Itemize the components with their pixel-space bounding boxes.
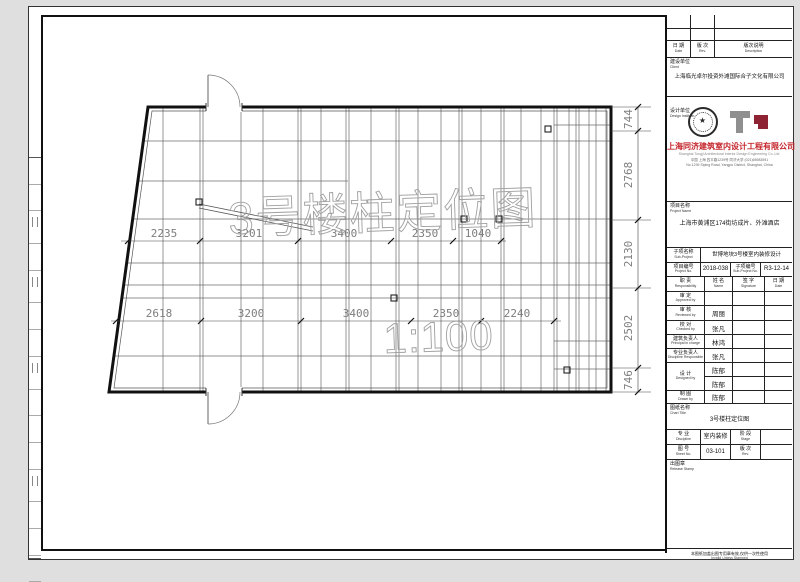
binding-strip-cell: [29, 277, 41, 304]
design-institute-name: 上海同济建筑室内设计工程有限公司: [667, 141, 792, 152]
floor-plan-drawing: 2235 3201 3400 2350 1040 2618 3200 3400 …: [41, 15, 665, 553]
copyright-note: 本图纸加盖出图专用章有效,仅供一次性使用 Invalid Unless Stam…: [667, 549, 792, 563]
design-institute-address: 中国 上海 四平路1239号 同济大学 (021)65983591 No.123…: [667, 158, 792, 167]
project-name-block: 项目名称 Project Name 上海市黄浦区174街坊成片、外滩酒店: [667, 202, 792, 248]
person-row-designed: 设 计 Designed by 陈郁 陈郁: [667, 363, 792, 391]
release-stamp-block: 出图章 Release Stamp: [667, 460, 792, 549]
responsibility-header-row: 职 责 Responsibility 姓 名 Name 签 字 Signatur…: [667, 277, 792, 292]
binding-strip-cell: [29, 244, 41, 271]
discipline-value: 室内装修: [703, 434, 727, 441]
dimension-label: 2768: [622, 162, 635, 189]
dimension-label: 2618: [146, 307, 173, 320]
cad-sheet-viewer: { "document": { "watermark_title": "3号楼柱…: [0, 0, 800, 568]
person-row-reviewed: 审 核 Reviewed by 周丽: [667, 306, 792, 321]
binding-strip-cell: [29, 217, 41, 244]
binding-strip-cell: [29, 158, 41, 185]
revision-header-row: 日 期 Date 版 次 Rev. 版次说明 Description: [667, 41, 792, 58]
title-block: 日 期 Date 版 次 Rev. 版次说明 Description 建设单位 …: [665, 15, 792, 553]
project-number: 2018-038: [703, 266, 728, 273]
binding-strip-cell: [29, 330, 41, 357]
binding-strip-cell: [29, 416, 41, 443]
binding-strip: [29, 157, 41, 559]
watermark-scale: 1:100: [383, 311, 495, 362]
dimension-label: 3400: [343, 307, 370, 320]
tj-logo-icon: [728, 107, 772, 137]
design-institute-block: 设计单位 Design Institute 上海同济建筑室内设计工程有限公司 S…: [667, 107, 792, 202]
binding-strip-cell: [29, 476, 41, 503]
door-bottom: [206, 387, 242, 424]
binding-strip-cell: [29, 502, 41, 529]
watermark-title: 3号楼柱定位图: [228, 182, 539, 244]
subproject-number: R3-12-14: [764, 266, 789, 273]
subproject-row: 子项名称 Sub-Project 世博地块3号楼室内装修设计: [667, 248, 792, 263]
discipline-row: 专 业 Discipline 室内装修 阶 段 Stage: [667, 430, 792, 445]
sheet-title-text: 3号楼柱定位图: [710, 417, 749, 424]
door-top: [206, 75, 242, 112]
plan-outline: [109, 107, 611, 392]
project-name: 上海市黄浦区174街坊成片、外滩酒店: [679, 221, 779, 228]
binding-strip-cell: [29, 303, 41, 330]
binding-strip-cell: [29, 185, 41, 212]
client-block: 建设单位 Client 上海临光卓尔投资外滩国际合子文化有限公司: [667, 58, 792, 97]
dimension-label: 2235: [151, 227, 178, 240]
drawing-sheet: 2235 3201 3400 2350 1040 2618 3200 3400 …: [28, 6, 794, 560]
dimension-labels-right: 744 2768 2130 2502 746: [622, 109, 635, 390]
grid-lines: [101, 101, 613, 396]
person-row-discipline-resp: 专业负责人 Discipline Responsible 张凡: [667, 349, 792, 363]
dimension-label: 2130: [622, 241, 635, 268]
binding-strip-cell: [29, 390, 41, 417]
sheet-title-block: 图纸名称 Chart Title 3号楼柱定位图: [667, 404, 792, 430]
subproject-name: 世博地块3号楼室内装修设计: [712, 252, 781, 258]
company-seal-icon: [688, 107, 718, 137]
binding-strip-cell: [29, 529, 41, 556]
person-row-drawn: 制 图 Drawn by 陈郁: [667, 391, 792, 404]
sheet-number: 03-101: [706, 449, 725, 456]
binding-strip-cell: [29, 556, 41, 582]
client-name: 上海临光卓尔投资外滩国际合子文化有限公司: [674, 74, 784, 80]
dimension-row-lower: [111, 318, 561, 324]
dimension-label: 744: [622, 109, 635, 129]
sheet-number-row: 图 号 Sheet No. 03-101 版 次 Rev.: [667, 445, 792, 460]
dimension-label: 2502: [622, 315, 635, 342]
project-number-row: 项目编号 Project No. 2018-038 子项编号 Sub-Proje…: [667, 263, 792, 277]
design-institute-name-en: Shanghai Tongji Architectural Interior D…: [667, 152, 792, 156]
revision-row-empty: [667, 15, 792, 29]
dimension-label: 746: [622, 370, 635, 390]
person-row-approved: 审 定 Approved by: [667, 292, 792, 306]
binding-strip-cell: [29, 363, 41, 390]
revision-row-empty: [667, 29, 792, 41]
dimension-label: 3200: [238, 307, 265, 320]
person-row-principal: 建筑负责人 Principal in charge 林鸿: [667, 335, 792, 349]
person-row-checked: 校 对 Checked by 张凡: [667, 321, 792, 335]
dimension-label: 2240: [504, 307, 531, 320]
binding-strip-cell: [29, 443, 41, 470]
